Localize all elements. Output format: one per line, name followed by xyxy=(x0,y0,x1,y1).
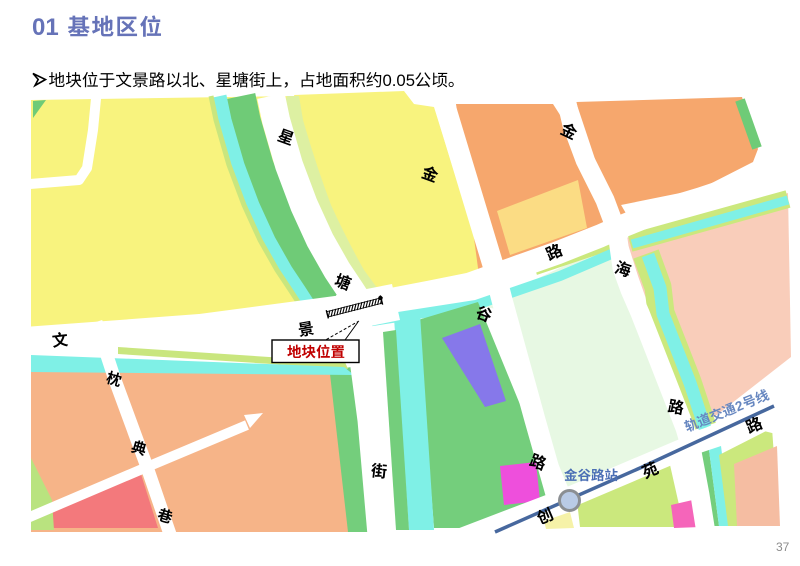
svg-text:0.05: 0.05 xyxy=(383,71,415,90)
svg-text:01: 01 xyxy=(32,14,59,41)
svg-text:37: 37 xyxy=(776,540,790,554)
svg-text:2: 2 xyxy=(733,398,746,415)
